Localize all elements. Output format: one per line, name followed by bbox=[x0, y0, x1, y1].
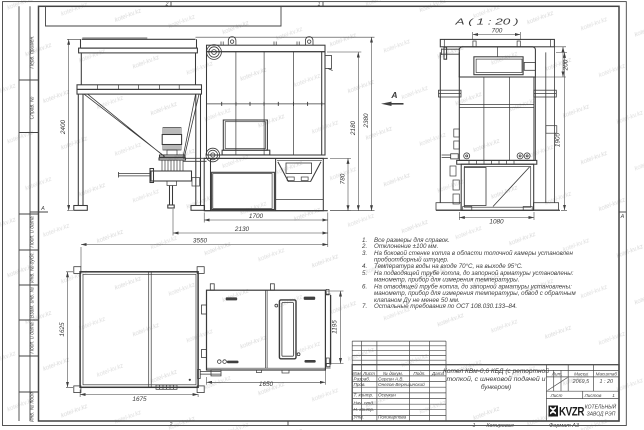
svg-text:ЗАВОД РЭП: ЗАВОД РЭП bbox=[587, 412, 616, 418]
svg-text:1 : 20: 1 : 20 bbox=[600, 379, 614, 385]
svg-text:Поликарпова: Поликарпова bbox=[378, 414, 407, 419]
svg-text:Остальные требования по ОСТ 10: Остальные требования по ОСТ 108.030.133–… bbox=[374, 303, 517, 310]
svg-text:1195: 1195 bbox=[331, 320, 338, 334]
svg-text:Копировал: Копировал bbox=[486, 423, 513, 429]
svg-text:Взам. инв. №: Взам. инв. № bbox=[30, 286, 36, 318]
svg-text:3550: 3550 bbox=[193, 238, 208, 245]
svg-text:КОТЕЛЬНЫЙ: КОТЕЛЬНЫЙ bbox=[585, 403, 617, 411]
svg-text:Перв. примен.: Перв. примен. bbox=[30, 35, 36, 68]
svg-text:А: А bbox=[620, 214, 625, 220]
svg-text:Разраб.: Разраб. bbox=[354, 377, 371, 382]
svg-text:200: 200 bbox=[563, 59, 570, 71]
svg-text:Н. контр.: Н. контр. bbox=[354, 407, 375, 412]
svg-text:780: 780 bbox=[340, 173, 347, 184]
svg-text:1675: 1675 bbox=[132, 396, 147, 403]
svg-text:А ( 1 : 20 ): А ( 1 : 20 ) bbox=[454, 18, 519, 27]
svg-text:1: 1 bbox=[472, 423, 475, 429]
svg-text:2: 2 bbox=[169, 422, 173, 428]
svg-text:Подп.: Подп. bbox=[413, 371, 425, 376]
svg-text:А: А bbox=[40, 206, 45, 212]
svg-text:KVZR: KVZR bbox=[559, 405, 585, 419]
svg-text:Сергин А.В.: Сергин А.В. bbox=[378, 377, 404, 382]
svg-text:Подп. и дата: Подп. и дата bbox=[30, 322, 36, 354]
svg-text:Лист: Лист bbox=[362, 371, 375, 376]
svg-text:Лит.: Лит. bbox=[551, 371, 563, 376]
svg-text:1625: 1625 bbox=[59, 322, 66, 337]
svg-text:Подп. и дата: Подп. и дата bbox=[30, 216, 36, 248]
svg-text:1: 1 bbox=[318, 2, 321, 8]
svg-text:2: 2 bbox=[165, 2, 169, 8]
svg-text:Масштаб: Масштаб bbox=[596, 371, 618, 376]
svg-text:А: А bbox=[390, 90, 397, 100]
svg-text:Изм: Изм bbox=[352, 371, 361, 376]
svg-text:Масса: Масса bbox=[574, 371, 588, 376]
svg-text:топкой, с шнековой подачей и: топкой, с шнековой подачей и bbox=[447, 375, 546, 383]
svg-text:2380: 2380 bbox=[363, 113, 370, 129]
svg-text:2130: 2130 bbox=[234, 226, 250, 233]
svg-text:6.: 6. bbox=[362, 283, 367, 290]
svg-text:Лист: Лист bbox=[550, 393, 563, 398]
svg-text:Котел КВм-0,6 КБД (с ретортной: Котел КВм-0,6 КБД (с ретортной bbox=[443, 367, 549, 375]
svg-text:Справ. №: Справ. № bbox=[30, 96, 36, 119]
svg-text:1905: 1905 bbox=[554, 132, 561, 147]
svg-text:Утв.: Утв. bbox=[354, 414, 364, 419]
svg-text:Пров.: Пров. bbox=[354, 382, 366, 387]
svg-text:5.: 5. bbox=[362, 270, 367, 277]
svg-text:Т. контр.: Т. контр. bbox=[354, 392, 374, 397]
svg-text:Инв. № подл.: Инв. № подл. bbox=[30, 391, 36, 422]
svg-text:2400: 2400 bbox=[60, 119, 67, 135]
svg-text:1650: 1650 bbox=[259, 381, 274, 388]
svg-text:Осечкин: Осечкин bbox=[378, 392, 396, 397]
svg-text:№ докум.: № докум. bbox=[383, 371, 403, 376]
svg-text:Нач. отд.: Нач. отд. bbox=[354, 401, 375, 406]
svg-text:1: 1 bbox=[612, 393, 615, 398]
svg-text:бункером): бункером) bbox=[481, 383, 511, 391]
svg-text:7.: 7. bbox=[362, 303, 367, 310]
svg-text:2180: 2180 bbox=[350, 120, 357, 136]
svg-text:Онегов-Верещинский: Онегов-Верещинский bbox=[378, 381, 425, 387]
svg-text:700: 700 bbox=[492, 28, 503, 35]
svg-text:2069,5: 2069,5 bbox=[572, 379, 590, 385]
svg-text:Формат А3: Формат А3 bbox=[549, 423, 580, 429]
svg-text:Инв. № дубл.: Инв. № дубл. bbox=[30, 252, 36, 283]
svg-text:Листов: Листов bbox=[584, 393, 602, 398]
svg-text:1700: 1700 bbox=[249, 213, 264, 220]
svg-text:1080: 1080 bbox=[489, 219, 504, 226]
svg-text:3.: 3. bbox=[362, 250, 367, 257]
